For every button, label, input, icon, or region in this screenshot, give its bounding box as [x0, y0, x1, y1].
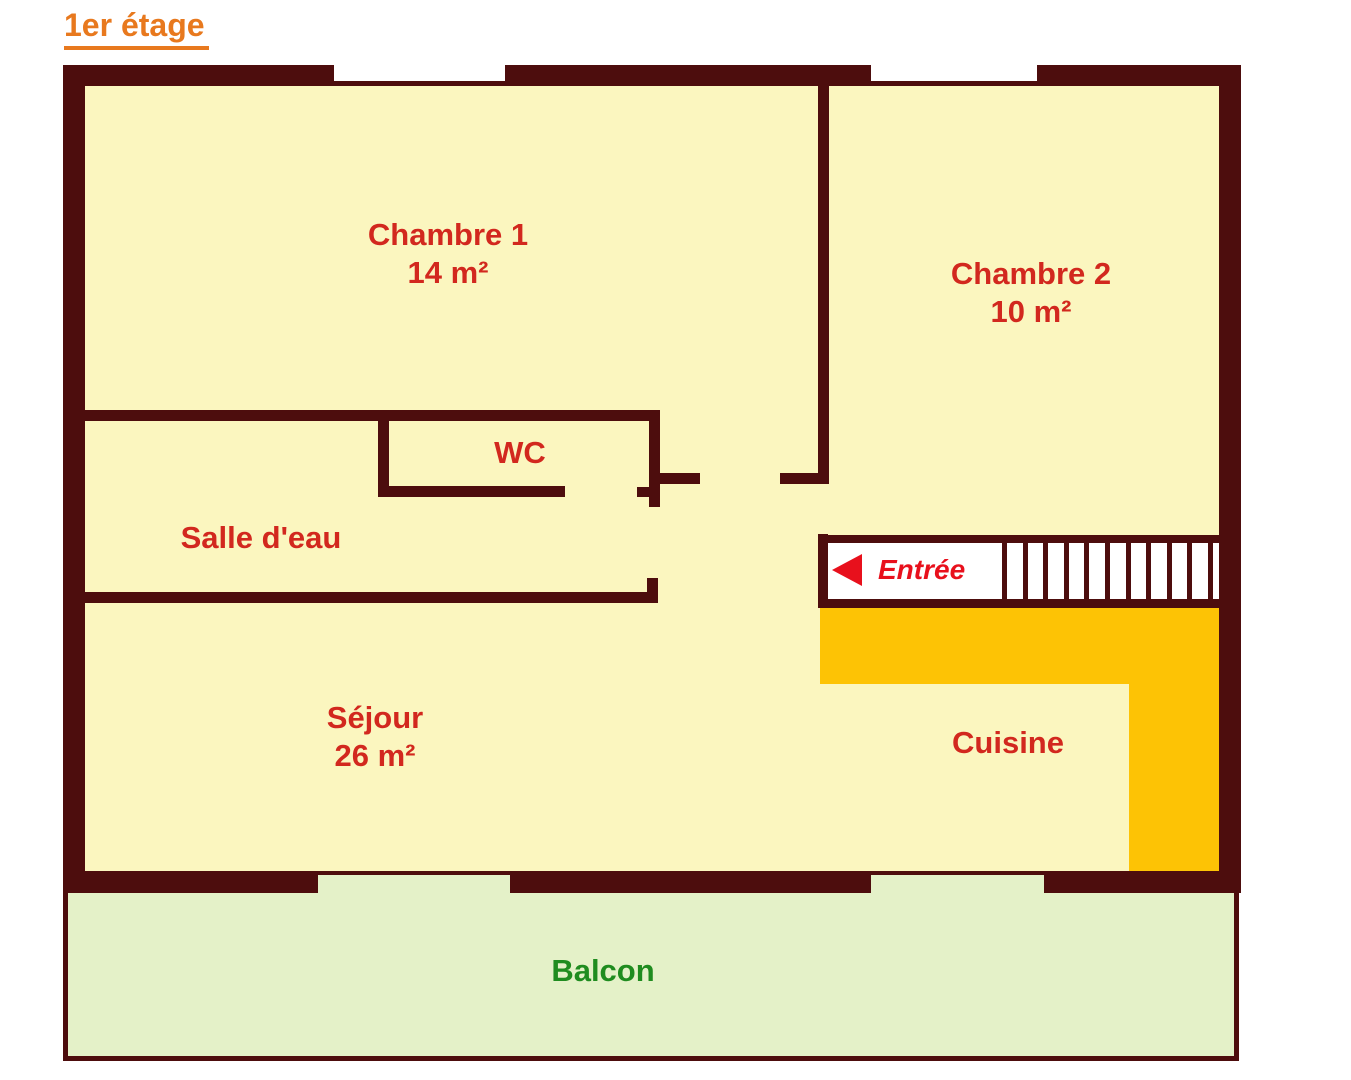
stair-riser-line	[1167, 543, 1172, 599]
stair-riser-line	[1002, 543, 1007, 599]
entry-strip-bottom-border	[828, 599, 1219, 608]
staircase	[1002, 543, 1219, 599]
entry-direction-arrow-icon	[832, 554, 862, 586]
balcony-border-left	[63, 893, 68, 1060]
wall-sejour-top	[85, 592, 658, 603]
room-entree-label: Entrée	[878, 554, 965, 586]
page-title: 1er étage	[64, 8, 209, 50]
stair-riser-line	[1084, 543, 1089, 599]
room-name: Cuisine	[952, 724, 1064, 762]
window-sill-line	[871, 81, 1037, 86]
wall-right	[1219, 65, 1241, 893]
window-sill-line	[334, 81, 505, 86]
kitchen-counter-zone	[820, 607, 1219, 684]
wall-bottom-right	[1044, 871, 1241, 893]
room-balcon-label: Balcon	[551, 953, 654, 989]
room-name: Chambre 2	[951, 255, 1111, 293]
window-sill-line	[318, 871, 510, 875]
window-sill-line	[871, 871, 1044, 875]
room-name: WC	[494, 434, 546, 472]
stair-riser-line	[1105, 543, 1110, 599]
wall-bottom-left	[63, 871, 318, 893]
wall-left	[63, 65, 85, 893]
wall-top-middle	[505, 65, 871, 86]
room-name: Salle d'eau	[181, 519, 342, 557]
room-area: 26 m²	[327, 737, 423, 775]
room-chambre2-label: Chambre 2 10 m²	[951, 255, 1111, 331]
balcony-door-opening	[871, 874, 1044, 893]
floor-plan: 1er étage Entrée Chambre 1 14 m² Chamb	[0, 0, 1351, 1080]
room-area: 10 m²	[951, 293, 1111, 331]
wall-corridor-jamb-left	[660, 473, 700, 484]
wall-wc-door-jamb	[637, 487, 649, 497]
stair-riser-line	[1208, 543, 1213, 599]
room-name: Chambre 1	[368, 216, 528, 254]
balcony-door-opening	[318, 874, 510, 893]
wall-chambres-divider	[818, 86, 829, 484]
room-chambre1-label: Chambre 1 14 m²	[368, 216, 528, 292]
room-area: 14 m²	[368, 254, 528, 292]
wall-sejour-top-jamb	[647, 578, 658, 592]
wall-corridor-jamb-right	[780, 473, 818, 484]
wall-bottom-middle	[510, 871, 871, 893]
kitchen-counter-zone	[1129, 684, 1219, 871]
stair-riser-line	[1064, 543, 1069, 599]
wall-wc-bottom	[378, 486, 565, 497]
room-salle-deau-label: Salle d'eau	[181, 519, 342, 557]
room-sejour-label: Séjour 26 m²	[327, 699, 423, 775]
entry-strip-cap	[818, 534, 828, 608]
room-cuisine-label: Cuisine	[952, 724, 1064, 762]
stair-riser-line	[1126, 543, 1131, 599]
balcony-border-right	[1234, 893, 1239, 1060]
stair-riser-line	[1043, 543, 1048, 599]
wall-chambre1-bottom	[85, 410, 660, 421]
wall-top-left	[63, 65, 334, 86]
wall-wc-right	[649, 410, 660, 507]
room-wc-label: WC	[494, 434, 546, 472]
balcony-border-bottom	[63, 1056, 1239, 1061]
wall-top-right	[1037, 65, 1241, 86]
stair-riser-line	[1023, 543, 1028, 599]
room-name: Séjour	[327, 699, 423, 737]
stair-riser-line	[1146, 543, 1151, 599]
stair-riser-line	[1187, 543, 1192, 599]
entry-strip-top-border	[828, 535, 1219, 543]
